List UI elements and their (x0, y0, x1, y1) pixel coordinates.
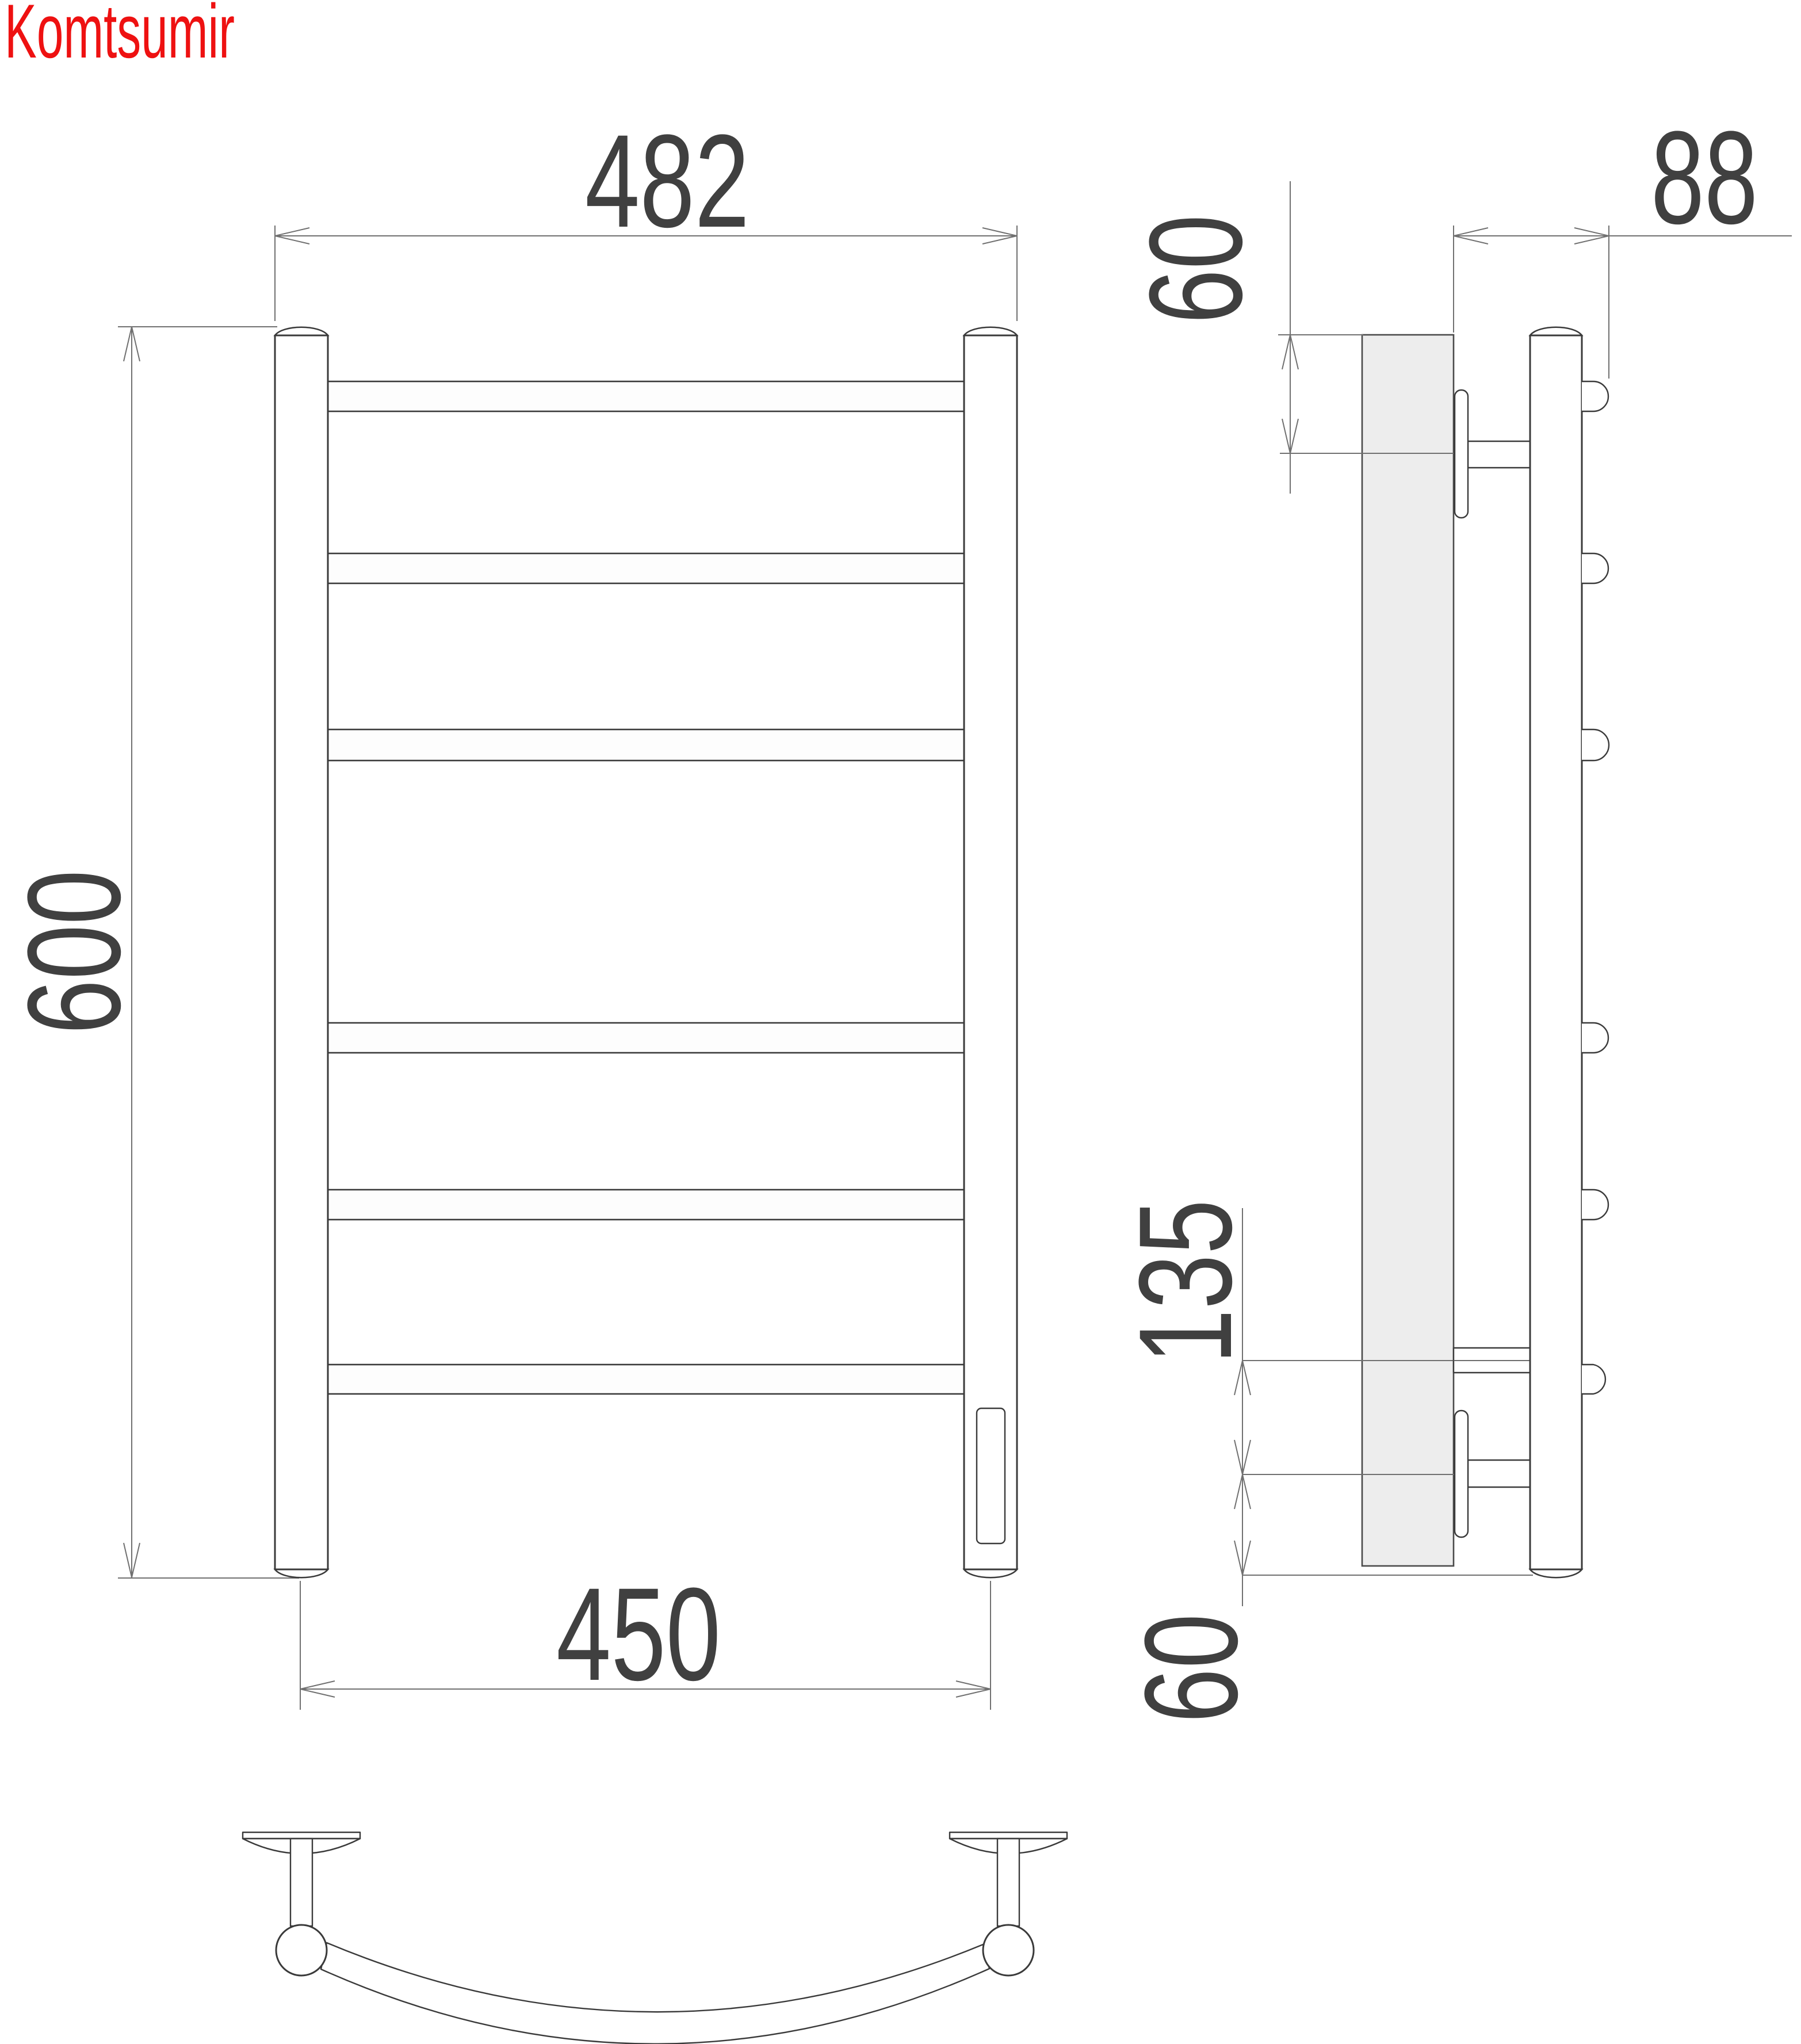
dim-text-height: 600 (0, 870, 148, 1034)
rung-end (1582, 1023, 1608, 1053)
bracket-flange-top (1455, 390, 1468, 518)
post-section-right (983, 1925, 1034, 1976)
rung (328, 553, 964, 583)
rung-end (1582, 1365, 1605, 1394)
post-section-left (276, 1925, 327, 1976)
dim-text-offset-bottom: 60 (1117, 1614, 1265, 1723)
mount-stem (997, 1839, 1019, 1926)
dim-text-width-bottom: 450 (556, 1560, 721, 1708)
left-post (275, 335, 328, 1569)
dim-text-offset-top: 60 (1122, 215, 1270, 324)
right-post (964, 335, 1017, 1569)
mount-stem (290, 1839, 312, 1926)
rung (328, 729, 964, 761)
rung-end (1582, 729, 1609, 761)
dim-text-width-top: 482 (585, 107, 750, 255)
towel-rail-technical-drawing: Komtsumir (0, 0, 1801, 2044)
rung (328, 1023, 964, 1053)
wall-plate (1362, 335, 1454, 1566)
heating-element-window (977, 1408, 1005, 1543)
rung-end (1582, 381, 1608, 411)
side-view (1454, 327, 1609, 1578)
wall-flange-bar (243, 1832, 360, 1839)
front-view (275, 327, 1017, 1578)
drawing-page: Komtsumir (0, 0, 1801, 2044)
side-post (1530, 335, 1582, 1569)
post-bottom-cap (1530, 1569, 1582, 1577)
bracket-arm-top (1468, 441, 1530, 468)
post-bottom-cap (964, 1569, 1017, 1577)
curved-rail-band (321, 1943, 989, 2044)
bracket-arm-bottom (1468, 1460, 1530, 1487)
post-bottom-cap (275, 1569, 328, 1577)
plan-view (243, 1832, 1067, 2044)
bracket-flange-bottom (1455, 1411, 1468, 1537)
post-top-cap (275, 327, 328, 335)
rung-end (1582, 1190, 1608, 1220)
post-top-cap (1530, 327, 1582, 335)
rung (328, 381, 964, 411)
rung (328, 1365, 964, 1394)
post-top-cap (964, 327, 1017, 335)
dim-text-depth: 88 (1651, 104, 1758, 251)
dim-text-span-mid: 135 (1111, 1199, 1259, 1364)
rung (328, 1190, 964, 1220)
brand-watermark: Komtsumir (5, 0, 235, 74)
wall-flange-bar (950, 1832, 1067, 1839)
rung-end (1582, 553, 1608, 583)
